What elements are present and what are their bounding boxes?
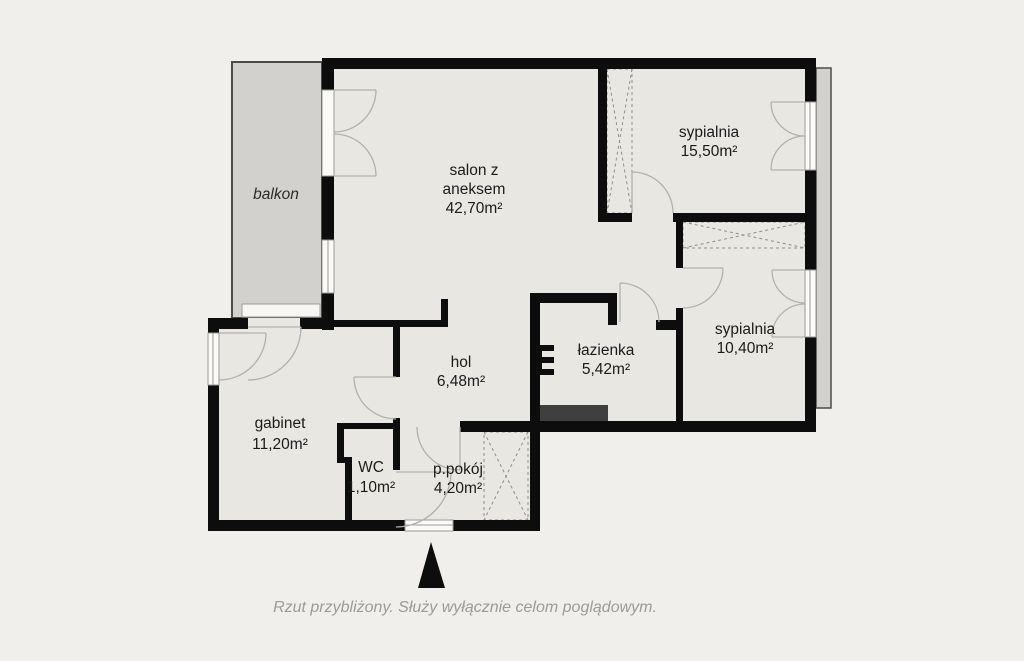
wall-top (322, 58, 816, 69)
wall-center-vertical (530, 293, 540, 531)
przedpokoj-name: p.pokój (433, 461, 483, 478)
balcony-window-band (242, 304, 320, 317)
lazienka-name: łazienka (578, 342, 635, 359)
wc-name: WC (358, 459, 384, 476)
sypialnia-mala-area: 10,40m² (717, 340, 774, 357)
room-label-balkon: balkon (253, 186, 299, 203)
sypialnia-duza-area: 15,50m² (681, 143, 738, 160)
wall-bedroom2-left (676, 308, 683, 421)
balkon-name: balkon (253, 186, 299, 203)
disclaimer-text: Rzut przybliżony. Służy wyłącznie celom … (273, 599, 657, 616)
przedpokoj-area: 4,20m² (434, 480, 482, 497)
sypialnia-duza-name: sypialnia (679, 124, 740, 141)
balcony-right-strip (816, 68, 831, 408)
wall-bottom-left (208, 520, 405, 531)
radiator-icon (538, 345, 554, 375)
salon-name-line2: aneksem (443, 181, 506, 198)
salon-name-line1: salon z (449, 162, 498, 179)
gabinet-area: 11,20m² (252, 436, 308, 453)
salon-area: 42,70m² (446, 200, 503, 217)
lazienka-area: 5,42m² (582, 361, 630, 378)
floor-plan-svg: balkon salon z aneksem 42,70m² sypialnia… (0, 0, 1024, 661)
gabinet-name: gabinet (255, 415, 307, 432)
hol-name: hol (451, 354, 472, 371)
wall-salon-bedroom (598, 58, 607, 222)
salon-balcony-door-opening (322, 90, 334, 176)
floor-plan-page: balkon salon z aneksem 42,70m² sypialnia… (0, 0, 1024, 661)
room-label-salon: salon z aneksem 42,70m² (443, 162, 506, 217)
wc-area: 1,10m² (347, 479, 395, 496)
wall-gabinet-left (208, 385, 219, 531)
wall-bathroom-top (530, 293, 617, 303)
wall-wc-top (337, 423, 400, 429)
entrance-arrow-icon (418, 542, 445, 588)
shower-tray (537, 405, 608, 421)
wall-hol-divider (322, 320, 448, 327)
hol-area: 6,48m² (437, 373, 485, 390)
wall-bottom-right (530, 421, 816, 432)
sypialnia-mala-name: sypialnia (715, 321, 776, 338)
wall-bedroom1-bottom (673, 213, 816, 222)
balcony-right-area (816, 68, 831, 408)
